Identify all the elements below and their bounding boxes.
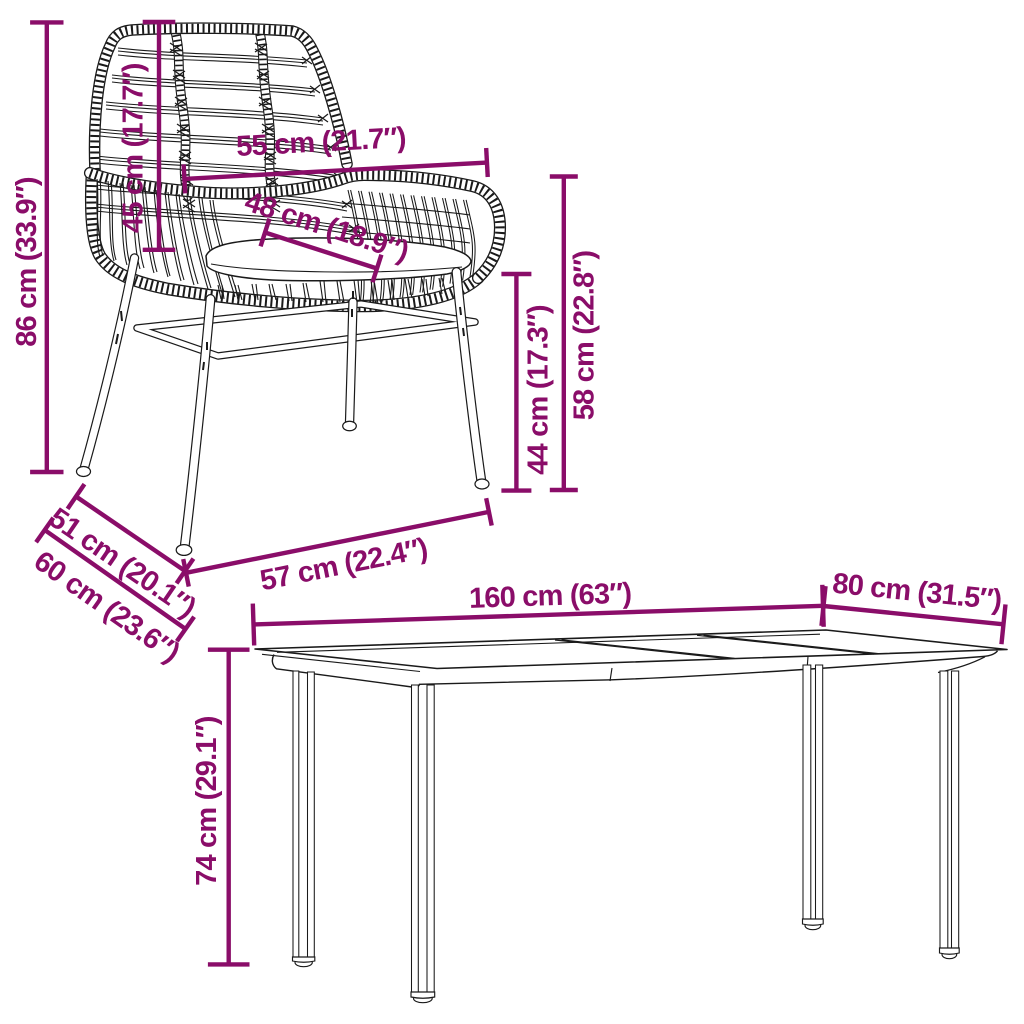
svg-text:45 cm (17.7″): 45 cm (17.7″) (118, 63, 150, 233)
svg-text:55 cm (21.7″): 55 cm (21.7″) (235, 122, 406, 163)
svg-text:74 cm (29.1″): 74 cm (29.1″) (191, 716, 223, 886)
svg-text:58 cm (22.8″): 58 cm (22.8″) (569, 251, 601, 421)
svg-text:160 cm (63″): 160 cm (63″) (469, 578, 632, 615)
svg-text:44 cm (17.3″): 44 cm (17.3″) (522, 305, 554, 475)
svg-text:86 cm (33.9″): 86 cm (33.9″) (11, 177, 43, 347)
